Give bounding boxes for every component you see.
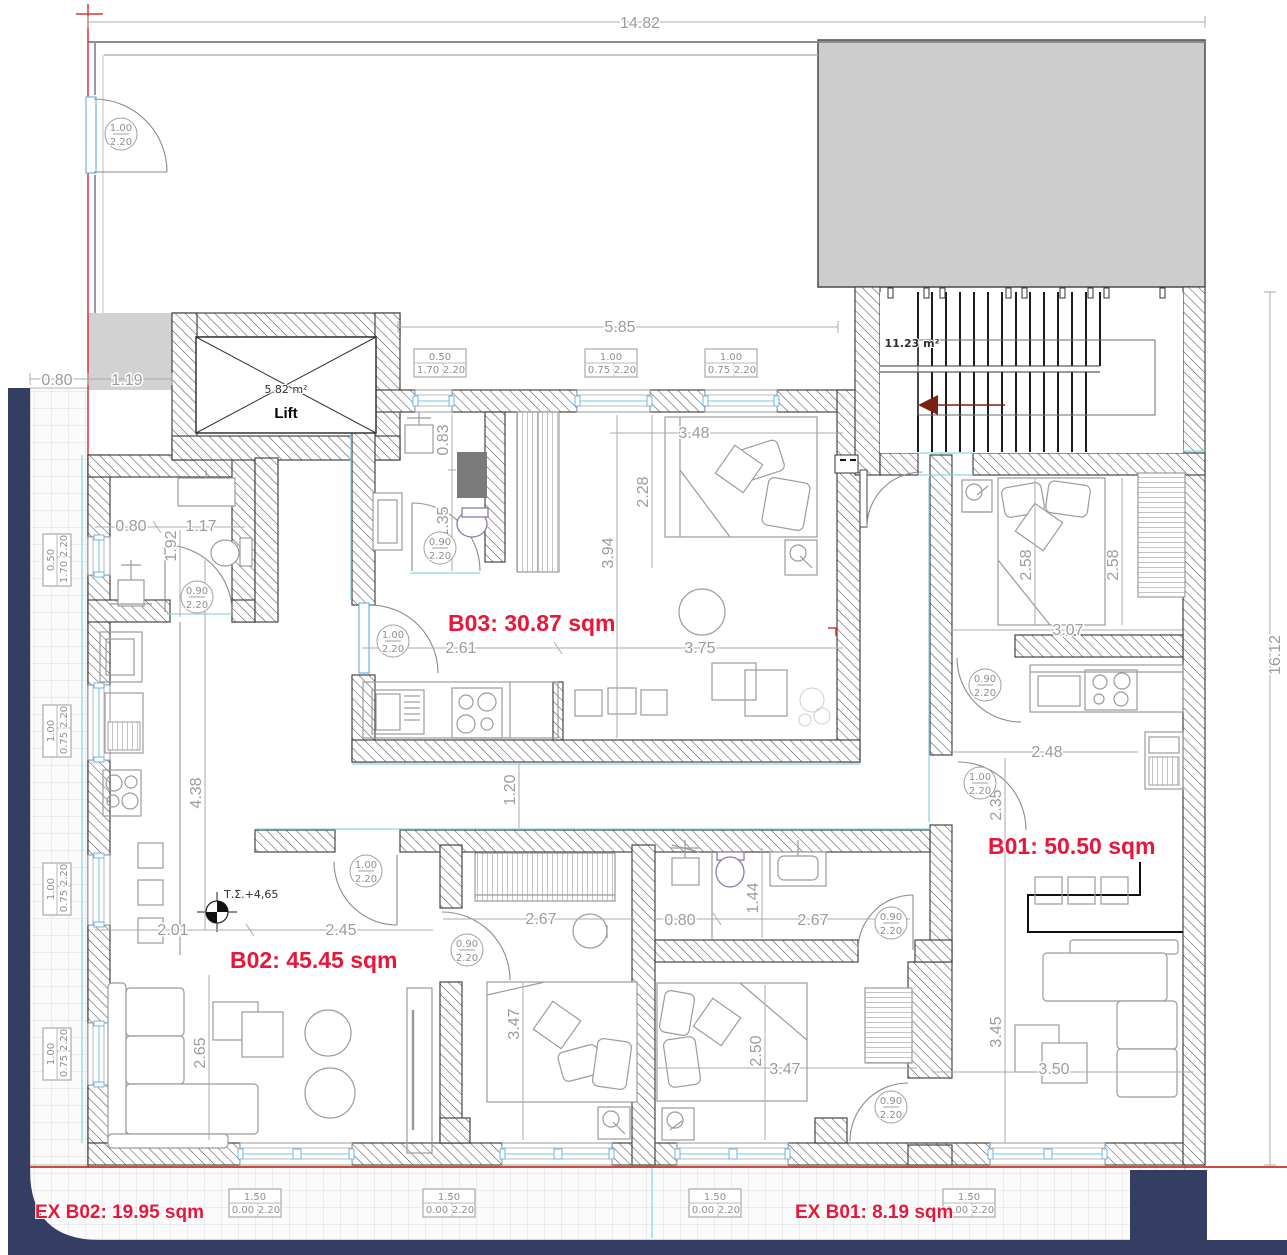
dim-label: 2.48 <box>1031 744 1062 761</box>
svg-text:0.75: 0.75 <box>59 890 70 912</box>
shaft <box>457 452 487 498</box>
room-area-label-ex-b02: EX B02: 19.95 sqm <box>35 1202 204 1223</box>
b03-wardrobe <box>517 412 559 572</box>
svg-text:2.20: 2.20 <box>59 1029 70 1051</box>
svg-text:1.00: 1.00 <box>720 352 742 363</box>
parapet-navy-block <box>1130 1170 1207 1240</box>
svg-text:1.50: 1.50 <box>244 1192 266 1203</box>
dim-label: 16.12 <box>1267 635 1284 675</box>
door-tag: 1.002.20 <box>350 855 382 887</box>
window-tag: 1.000.752.20 <box>705 349 757 377</box>
b03-kitchen <box>363 682 558 738</box>
door-tag: 0.902.20 <box>424 532 456 564</box>
door-tag: 0.902.20 <box>875 907 907 939</box>
b02-kitchen <box>100 622 180 955</box>
lift-area-label: 5.82 m² <box>264 383 307 396</box>
dim-label: 4.38 <box>188 777 205 808</box>
window <box>413 390 454 412</box>
lift-name-label: Lift <box>274 405 297 422</box>
window-tag: 1.500.002.20 <box>423 1189 475 1217</box>
door-tag: 1.002.20 <box>964 767 996 799</box>
window <box>88 853 110 927</box>
window-tag: 1.000.752.20 <box>585 349 637 377</box>
svg-text:0.75: 0.75 <box>59 1055 70 1077</box>
room-area-label-b03: B03: 30.87 sqm <box>448 610 615 636</box>
dim-label: 0.80 <box>664 912 695 929</box>
window-tag: 1.500.002.20 <box>689 1189 741 1217</box>
window-tag: 1.000.752.20 <box>43 1028 71 1080</box>
dim-label: 1.19 <box>111 372 142 389</box>
stair-area-label: 11.23 m² <box>885 337 940 350</box>
window <box>703 390 779 412</box>
svg-text:2.20: 2.20 <box>258 1205 280 1216</box>
window <box>88 1021 110 1087</box>
dim-label: 3.50 <box>1038 1061 1069 1078</box>
svg-text:2.20: 2.20 <box>880 926 902 937</box>
floor-plan-svg: 5.82 m² Lift 11.23 m² <box>0 0 1287 1255</box>
door-tag: 0.902.20 <box>969 669 1001 701</box>
svg-text:0.75: 0.75 <box>708 365 730 376</box>
room-area-label-b02: B02: 45.45 sqm <box>230 947 397 973</box>
svg-text:1.50: 1.50 <box>958 1192 980 1203</box>
dim-label: 2.58 <box>1105 549 1122 580</box>
window <box>988 1143 1107 1165</box>
window-tag: 1.000.752.20 <box>43 705 71 757</box>
window <box>575 390 652 412</box>
room-area-label-b01: B01: 50.50 sqm <box>988 833 1155 859</box>
svg-text:0.90: 0.90 <box>880 1096 902 1107</box>
svg-text:1.70: 1.70 <box>417 365 439 376</box>
terrace-tiles-left <box>30 388 88 1240</box>
b01-bar <box>1028 862 1183 932</box>
dim-label: 2.45 <box>325 922 356 939</box>
svg-text:1.00: 1.00 <box>110 123 132 134</box>
dim-label: 3.94 <box>600 537 617 568</box>
svg-text:2.20: 2.20 <box>614 365 636 376</box>
svg-text:0.00: 0.00 <box>426 1205 448 1216</box>
window-tag: 0.501.702.20 <box>414 349 466 377</box>
svg-text:1.70: 1.70 <box>59 561 70 583</box>
door-tag: 1.002.20 <box>377 625 409 657</box>
svg-text:0.90: 0.90 <box>880 912 902 923</box>
door-tag: 0.902.20 <box>875 1091 907 1123</box>
dim-label: 1.92 <box>163 530 180 561</box>
dim-label: 2.65 <box>192 1037 209 1068</box>
dim-label: 1.44 <box>745 882 762 913</box>
floor-plan-page: 5.82 m² Lift 11.23 m² <box>0 0 1287 1255</box>
dim-label: 0.80 <box>41 372 72 389</box>
svg-text:0.75: 0.75 <box>59 732 70 754</box>
neighbor-building <box>818 40 1205 287</box>
svg-text:2.20: 2.20 <box>59 706 70 728</box>
door-tag: 0.902.20 <box>451 934 483 966</box>
window <box>238 1143 354 1165</box>
svg-text:1.00: 1.00 <box>46 720 57 742</box>
dim-label: 2.28 <box>635 476 652 507</box>
door-tag: 1.002.20 <box>105 118 137 150</box>
staircase: 11.23 m² <box>835 288 1183 473</box>
window-tag: 1.000.752.20 <box>43 863 71 915</box>
svg-text:0.90: 0.90 <box>186 586 208 597</box>
svg-text:1.00: 1.00 <box>382 630 404 641</box>
svg-text:0.90: 0.90 <box>974 674 996 685</box>
room-area-label-ex-b01: EX B01: 8.19 sqm <box>795 1202 953 1223</box>
svg-text:2.20: 2.20 <box>59 864 70 886</box>
svg-text:0.00: 0.00 <box>232 1205 254 1216</box>
window-tag: 0.501.702.20 <box>43 534 71 586</box>
svg-text:1.50: 1.50 <box>704 1192 726 1203</box>
dim-label: 3.48 <box>678 425 709 442</box>
dim-label: 2.01 <box>157 922 188 939</box>
dim-label: 3.47 <box>769 1061 800 1078</box>
level-mark-label: Τ.Σ.+4,65 <box>223 888 278 901</box>
svg-text:0.50: 0.50 <box>46 549 57 571</box>
svg-text:0.90: 0.90 <box>456 939 478 950</box>
svg-text:2.20: 2.20 <box>456 953 478 964</box>
window <box>675 1143 790 1165</box>
window-tag: 1.500.002.20 <box>229 1189 281 1217</box>
bedroom-left <box>475 853 637 1139</box>
svg-text:1.00: 1.00 <box>46 1043 57 1065</box>
dim-label: 1.20 <box>502 774 519 805</box>
dim-label: 2.58 <box>1018 549 1035 580</box>
svg-text:1.50: 1.50 <box>438 1192 460 1203</box>
window <box>500 1143 614 1165</box>
svg-text:2.20: 2.20 <box>974 688 996 699</box>
dim-label: 0.80 <box>115 518 146 535</box>
svg-text:2.20: 2.20 <box>382 644 404 655</box>
svg-text:0.90: 0.90 <box>429 537 451 548</box>
svg-text:1.00: 1.00 <box>969 772 991 783</box>
window <box>88 683 110 762</box>
dim-label: 3.75 <box>684 640 715 657</box>
svg-text:1.00: 1.00 <box>46 878 57 900</box>
svg-text:2.20: 2.20 <box>59 535 70 557</box>
dim-label: 1.17 <box>185 518 216 535</box>
lift: 5.82 m² Lift <box>196 337 376 433</box>
svg-text:2.20: 2.20 <box>443 365 465 376</box>
b01-kitchen <box>1030 665 1183 789</box>
dim-label: 3.07 <box>1052 622 1083 639</box>
dim-label: 5.85 <box>604 319 635 336</box>
dim-label: 3.47 <box>506 1008 523 1039</box>
dim-label: 2.67 <box>797 912 828 929</box>
svg-text:2.20: 2.20 <box>969 786 991 797</box>
door-tag: 0.902.20 <box>181 581 213 613</box>
svg-text:1.00: 1.00 <box>355 860 377 871</box>
electrical-niche <box>835 455 858 473</box>
dim-label: 3.45 <box>988 1016 1005 1047</box>
svg-text:2.20: 2.20 <box>718 1205 740 1216</box>
dim-label: 2.50 <box>748 1035 765 1066</box>
svg-text:0.00: 0.00 <box>692 1205 714 1216</box>
svg-text:2.20: 2.20 <box>972 1205 994 1216</box>
dim-label: 2.61 <box>445 640 476 657</box>
b01-bedroom <box>962 473 1185 625</box>
svg-text:2.20: 2.20 <box>110 137 132 148</box>
window <box>88 535 110 577</box>
b02-tv-cabinet <box>407 988 432 1153</box>
svg-text:1.00: 1.00 <box>600 352 622 363</box>
svg-text:2.20: 2.20 <box>734 365 756 376</box>
svg-text:0.50: 0.50 <box>429 352 451 363</box>
svg-text:2.20: 2.20 <box>355 874 377 885</box>
b03-tv <box>785 540 817 575</box>
svg-text:2.20: 2.20 <box>186 600 208 611</box>
b02-bathroom <box>110 470 252 606</box>
svg-text:2.20: 2.20 <box>429 551 451 562</box>
svg-text:2.20: 2.20 <box>880 1110 902 1121</box>
dim-label: 0.83 <box>435 424 452 455</box>
dim-label: 14.82 <box>620 15 660 32</box>
dim-label: 2.67 <box>525 911 556 928</box>
svg-text:0.75: 0.75 <box>588 365 610 376</box>
svg-text:2.20: 2.20 <box>452 1205 474 1216</box>
b02-sofa <box>108 983 258 1148</box>
